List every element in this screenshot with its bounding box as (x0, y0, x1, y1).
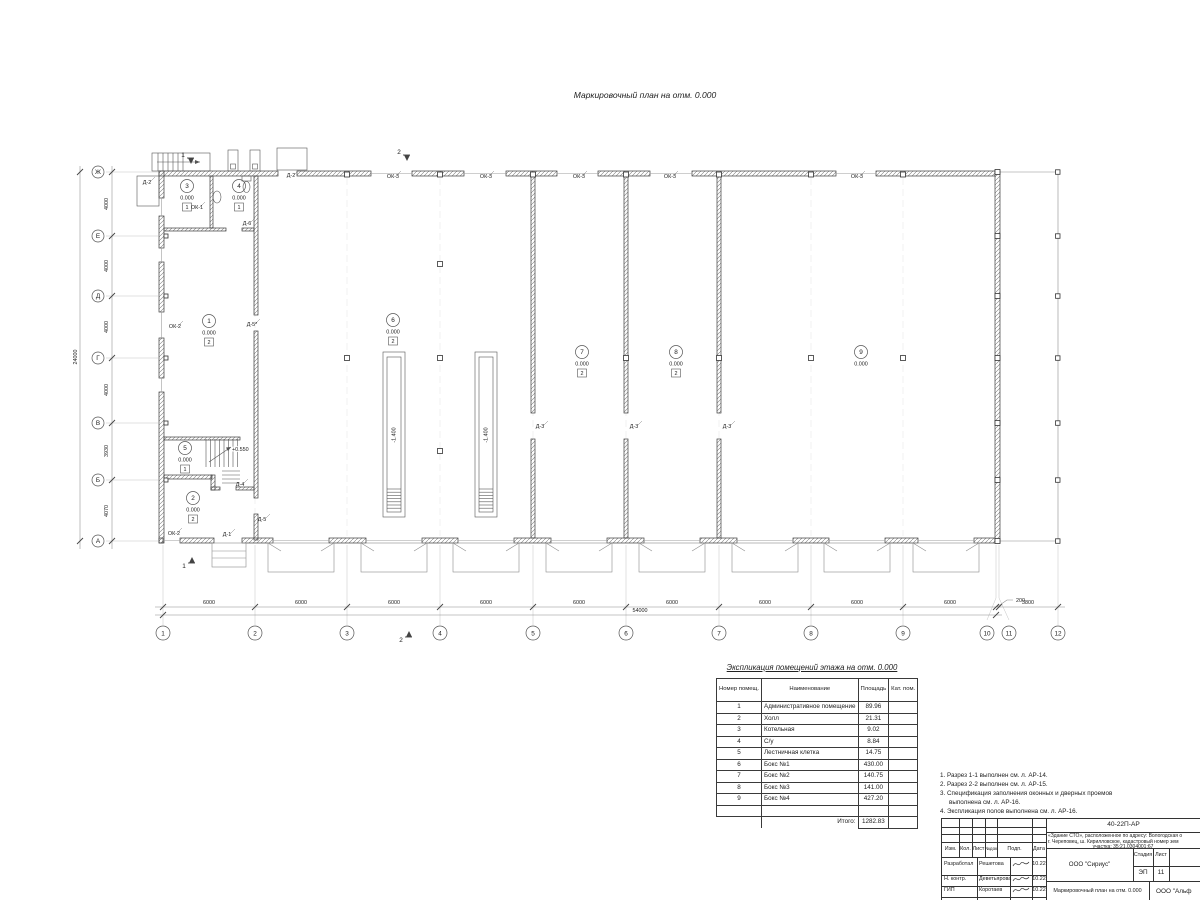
column (995, 421, 1000, 426)
opening-label: ОК-1 (191, 205, 203, 211)
table-cell (889, 713, 918, 725)
table-cell: Холл (762, 713, 858, 725)
column (1056, 234, 1061, 239)
column (1056, 170, 1061, 175)
dim-label: 6000 (851, 600, 863, 606)
room-elevation: 0.000 (178, 458, 192, 464)
section-arrow (404, 155, 410, 161)
table-cell: 89.96 (858, 702, 889, 714)
dim-label: 6000 (573, 600, 585, 606)
table-cell: Бокс №1 (762, 759, 858, 771)
dim-label: 6000 (944, 600, 956, 606)
person-name: Решетова (979, 862, 1004, 867)
dim-label: 4000 (104, 260, 110, 272)
floor-type: 2 (675, 371, 678, 377)
gate-ramp (913, 543, 979, 572)
note-line: 1. Разрез 1-1 выполнен см. л. АР-14. (940, 771, 1136, 780)
column (164, 234, 168, 238)
gate-ramp (639, 543, 705, 572)
opening-label: Д-5 (258, 517, 266, 523)
table-cell (889, 759, 918, 771)
table-cell: 7 (717, 771, 762, 783)
table-cell: 9 (717, 794, 762, 806)
column (1056, 421, 1061, 426)
table-cell: Бокс №2 (762, 771, 858, 783)
empty-row (717, 805, 918, 817)
table-row: 9Бокс №4427.20 (717, 794, 918, 806)
opening-label: Д-4 (236, 482, 244, 488)
dim-label: 6000 (388, 600, 400, 606)
table-cell: 9.02 (858, 725, 889, 737)
grid-row-label: В (96, 420, 100, 427)
section-label: 1 (181, 152, 185, 159)
table-row: 8Бокс №3141.00 (717, 782, 918, 794)
gate-ramp (732, 543, 798, 572)
note-line: 3. Спецификация заполнения оконных и две… (940, 789, 1136, 807)
tb-col-data: Дата (1032, 847, 1046, 852)
col-header-kat: Кат. пом. (889, 679, 918, 702)
grid-col-label: 10 (983, 630, 991, 637)
col-header-number: Номер помещ. (717, 679, 762, 702)
grid-col-label: 5 (531, 630, 535, 637)
column (164, 421, 168, 425)
column (717, 172, 722, 177)
tb-col-kol: Кол. (959, 847, 972, 852)
total-row: Итого: 1282.83 (717, 817, 918, 829)
opening-label: ОК-2 (169, 324, 181, 330)
drawing-name: Маркировочный план на отм. 0.000 (1046, 889, 1149, 894)
section-label: 1 (182, 563, 186, 570)
table-row: 2Холл21.31 (717, 713, 918, 725)
ramp-edge (824, 543, 837, 551)
room-number: 6 (391, 317, 395, 324)
section-label: 2 (397, 149, 401, 156)
grid-row-label: Г (96, 355, 100, 362)
table-cell: Административное помещение (762, 702, 858, 714)
floor-type: 2 (581, 371, 584, 377)
column (345, 356, 350, 361)
room-number: 3 (185, 183, 189, 190)
walls (159, 171, 1000, 543)
table-cell: 8.84 (858, 736, 889, 748)
dim-label: 6000 (480, 600, 492, 606)
person-role: ГИП (944, 888, 955, 893)
sheet-label: Лист (1153, 853, 1169, 858)
ramp-edge (877, 543, 890, 551)
column (1056, 356, 1061, 361)
table-cell: 3 (717, 725, 762, 737)
table-row: 6Бокс №1430.00 (717, 759, 918, 771)
column (1056, 294, 1061, 299)
ramp-edge (506, 543, 519, 551)
person-signature (1012, 886, 1030, 896)
table-cell: 430.00 (858, 759, 889, 771)
column (717, 356, 722, 361)
column (995, 294, 1000, 299)
opening-label: Д-5* (247, 322, 258, 328)
column (995, 478, 1000, 483)
grid-col-label: 8 (809, 630, 813, 637)
ramp-edge (785, 543, 798, 551)
opening-label: ОК-3 (480, 174, 492, 180)
fixtures (137, 148, 1058, 567)
room-elevation: 0.000 (669, 362, 683, 368)
axis-ext-line (999, 545, 1009, 620)
column (1056, 539, 1061, 544)
plan-annotations: ЖЕДГВБА123456789101112400040004000400039… (73, 149, 1065, 644)
sheet-value: 11 (1153, 870, 1169, 876)
column (164, 478, 168, 482)
tb-col-list: Лист (972, 847, 985, 852)
person-role: Н. контр. (944, 877, 966, 882)
table-cell: Бокс №4 (762, 794, 858, 806)
opening-label: Д-2 (287, 173, 295, 179)
dim-overall-h: 54000 (633, 608, 648, 614)
person-date: 10.22 (1032, 862, 1046, 867)
grid-col-label: 4 (438, 630, 442, 637)
stair-elevation: +0.550 (232, 447, 249, 453)
room-number: 4 (237, 183, 241, 190)
note-line: 4. Экспликация полов выполнена см. л. АР… (940, 807, 1136, 816)
ramp-edge (639, 543, 652, 551)
ramp-edge (913, 543, 926, 551)
explication: Экспликация помещений этажа на отм. 0.00… (712, 663, 912, 829)
table-cell: 4 (717, 736, 762, 748)
doc-number: 40-22П-АР (1046, 822, 1200, 829)
column (164, 356, 168, 360)
dim-label: 4000 (104, 321, 110, 333)
axis-faint-lines (255, 178, 903, 536)
note-line: 2. Разрез 2-2 выполнен см. л. АР-15. (940, 780, 1136, 789)
column (901, 172, 906, 177)
ramp-edge (692, 543, 705, 551)
table-cell: Лестничная клетка (762, 748, 858, 760)
column (995, 234, 1000, 239)
tb-col-doc: №док (985, 847, 997, 852)
grid-row-label: Ж (95, 169, 101, 176)
table-cell: 6 (717, 759, 762, 771)
table-cell: 21.31 (858, 713, 889, 725)
dim-label: 6000 (203, 600, 215, 606)
column (901, 356, 906, 361)
table-cell: С/у (762, 736, 858, 748)
column (438, 262, 443, 267)
dim-label: 3930 (104, 445, 110, 457)
floor-type: 2 (392, 339, 395, 345)
floor-type: 2 (192, 517, 195, 523)
floor-type: 2 (208, 340, 211, 346)
table-cell: 141.00 (858, 782, 889, 794)
floor-type: 1 (238, 205, 241, 211)
signature (1012, 875, 1030, 883)
ramp-edge (599, 543, 612, 551)
opening-label: ОК-3 (851, 174, 863, 180)
dim-label: 4000 (104, 198, 110, 210)
org2-name: ООО "Альф (1156, 889, 1192, 895)
room-number: 9 (859, 349, 863, 356)
opening-label: ОК-3 (573, 174, 585, 180)
column (809, 172, 814, 177)
table-cell: 14.75 (858, 748, 889, 760)
column (1056, 478, 1061, 483)
floor-type: 1 (186, 205, 189, 211)
person-name: Деветьярова (979, 877, 1011, 882)
ramp-edge (546, 543, 559, 551)
grid-col-label: 7 (717, 630, 721, 637)
table-cell: 5 (717, 748, 762, 760)
column (438, 172, 443, 177)
opening-label: Д-6 (243, 221, 251, 227)
ramp-edge (321, 543, 334, 551)
table-cell (889, 736, 918, 748)
gate-ramp (361, 543, 427, 572)
pit-elevation: -1.400 (392, 427, 398, 442)
dim-label: 6000 (666, 600, 678, 606)
person-signature (1012, 860, 1030, 870)
room-number: 8 (674, 349, 678, 356)
grid-row-label: Е (96, 233, 100, 240)
org-name: ООО "Сириус" (1046, 862, 1133, 868)
dim-label: 6000 (295, 600, 307, 606)
opening-label: Д-2 (143, 180, 151, 186)
column (995, 539, 1000, 544)
opening-label: ОК-2 (168, 531, 180, 537)
table-cell: 427.20 (858, 794, 889, 806)
vestibule (277, 148, 307, 170)
tb-col-izm: Изм. (942, 847, 959, 852)
room-elevation: 0.000 (202, 331, 216, 337)
table-cell (889, 794, 918, 806)
shaft (228, 150, 238, 171)
table-cell: 140.75 (858, 771, 889, 783)
room-elevation: 0.000 (232, 196, 246, 202)
column (809, 356, 814, 361)
tb-col-podp: Подп. (997, 847, 1032, 852)
person-name: Коротаев (979, 888, 1002, 893)
grid-col-label: 1 (161, 630, 165, 637)
room-elevation: 0.000 (186, 508, 200, 514)
person-signature (1012, 875, 1030, 885)
room-number: 5 (183, 445, 187, 452)
total-label: Итого: (762, 817, 858, 829)
ramp-edge (361, 543, 374, 551)
signature (1012, 860, 1030, 868)
gate-ramp (453, 543, 519, 572)
table-cell (889, 725, 918, 737)
person-role: Разработал (944, 862, 973, 867)
total-value: 1282.83 (858, 817, 889, 829)
table-row: 5Лестничная клетка14.75 (717, 748, 918, 760)
stage-value: ЭП (1133, 870, 1153, 876)
table-cell (889, 702, 918, 714)
grid-row-label: Д (96, 293, 101, 300)
gate-ramp (268, 543, 334, 572)
column (624, 172, 629, 177)
floor-plan: ЖЕДГВБА123456789101112400040004000400039… (0, 0, 1200, 900)
room-elevation: 0.000 (854, 362, 868, 368)
column (438, 449, 443, 454)
table-row: 1Административное помещение89.96 (717, 702, 918, 714)
col-header-area: Площадь (858, 679, 889, 702)
grid-col-label: 12 (1054, 630, 1062, 637)
column (995, 170, 1000, 175)
opening-label: ОК-3 (387, 174, 399, 180)
door-porch (212, 543, 246, 567)
grid-row-label: А (96, 538, 101, 545)
drawing-sheet: { "colors": {"wall_line":"#3c3c3c","hatc… (0, 0, 1200, 900)
dim-overall-v: 24000 (73, 350, 79, 365)
column (438, 356, 443, 361)
room-number: 2 (191, 495, 195, 502)
table-cell: 8 (717, 782, 762, 794)
section-label: 2 (399, 637, 403, 644)
room-number: 1 (207, 318, 211, 325)
room-number: 7 (580, 349, 584, 356)
dim-leader (997, 600, 1013, 607)
ramp-edge (966, 543, 979, 551)
ramp-edge (268, 543, 281, 551)
grid-col-label: 9 (901, 630, 905, 637)
room-elevation: 0.000 (180, 196, 194, 202)
table-row: 3Котельная9.02 (717, 725, 918, 737)
ramp-edge (732, 543, 745, 551)
column (624, 356, 629, 361)
sink-icon (213, 191, 221, 203)
table-cell: Бокс №3 (762, 782, 858, 794)
signature (1012, 886, 1030, 894)
column (345, 172, 350, 177)
floor-type: 1 (184, 467, 187, 473)
grid-col-label: 11 (1006, 630, 1013, 637)
dim-label: 6000 (759, 600, 771, 606)
grid-col-label: 3 (345, 630, 349, 637)
section-arrow (406, 631, 412, 637)
grid-row-label: Б (96, 477, 100, 484)
gate-ramp (546, 543, 612, 572)
col-header-name: Наименование (762, 679, 858, 702)
section-arrow (188, 158, 194, 164)
table-cell: Котельная (762, 725, 858, 737)
notes: 1. Разрез 1-1 выполнен см. л. АР-14.2. Р… (940, 771, 1136, 816)
person-date: 10.22 (1032, 888, 1046, 893)
opening-label: Д-3 (536, 424, 544, 430)
canopy-outline (995, 172, 1058, 541)
person-date: 10.22 (1032, 877, 1046, 882)
shaft (250, 150, 260, 171)
dim-label: 200 (1016, 598, 1025, 604)
ramp-edge (453, 543, 466, 551)
table-row: 7Бокс №2140.75 (717, 771, 918, 783)
section-arrow (189, 557, 195, 563)
opening-label: Д-1 (223, 532, 231, 538)
table-cell: 1 (717, 702, 762, 714)
toilet-icon (242, 176, 251, 181)
title-block: Изм. Кол. Лист №док Подп. Дата Разработа… (941, 818, 1200, 900)
dim-label: 4000 (104, 384, 110, 396)
ramp-edge (414, 543, 427, 551)
column (531, 172, 536, 177)
column (164, 294, 168, 298)
table-cell (889, 771, 918, 783)
table-cell: 2 (717, 713, 762, 725)
room-elevation: 0.000 (575, 362, 589, 368)
opening-label: ОК-3 (664, 174, 676, 180)
opening-label: Д-3 (723, 424, 731, 430)
explication-title: Экспликация помещений этажа на отм. 0.00… (712, 663, 912, 672)
grid-col-label: 6 (624, 630, 628, 637)
opening-label: Д-3 (630, 424, 638, 430)
column (995, 356, 1000, 361)
project-line3: участка: 35:21.0304001:67 (1048, 845, 1198, 850)
dim-label: 4070 (104, 505, 110, 517)
gate-ramp (824, 543, 890, 572)
pit-elevation: -1.400 (484, 427, 490, 442)
room-elevation: 0.000 (386, 330, 400, 336)
table-cell (889, 748, 918, 760)
explication-table: Номер помещ. Наименование Площадь Кат. п… (716, 678, 918, 829)
stage-label: Стадия (1133, 853, 1153, 858)
grid-col-label: 2 (253, 630, 257, 637)
table-row: 4С/у8.84 (717, 736, 918, 748)
table-cell (889, 782, 918, 794)
